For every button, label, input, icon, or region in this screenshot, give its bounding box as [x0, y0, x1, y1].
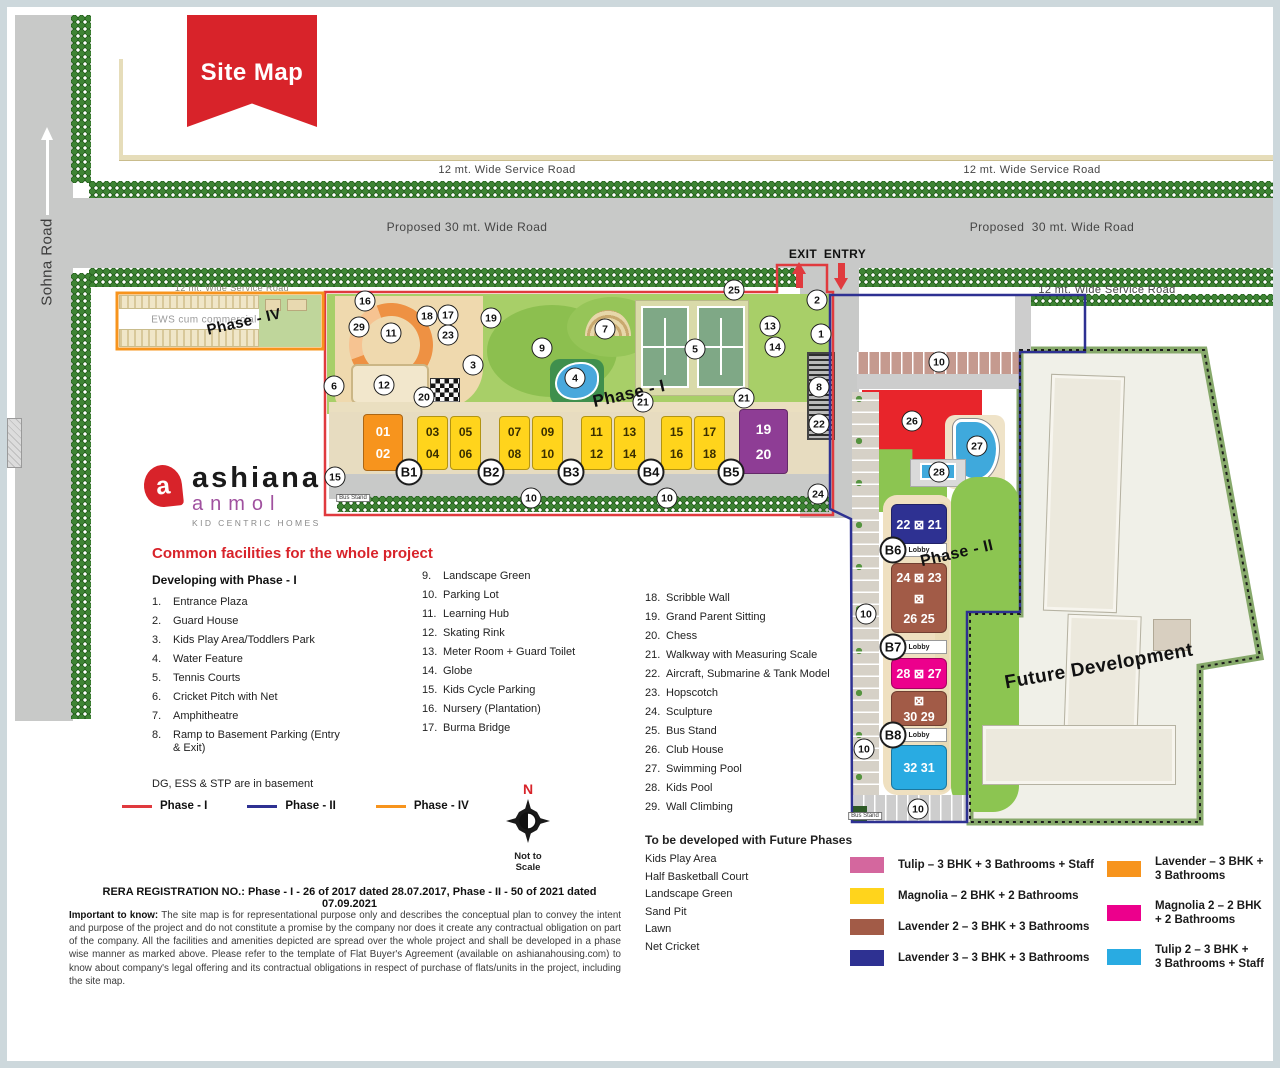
not-to-scale-label: Not to Scale — [502, 851, 554, 873]
unit-legend-label: Lavender – 3 BHK + 3 Bathrooms — [1155, 855, 1263, 884]
facility-text: 13. — [422, 646, 443, 659]
map-label: Sohna Road — [39, 218, 56, 305]
facility-item: 2.Guard House — [152, 615, 347, 628]
tower-number: 04 — [426, 448, 439, 460]
tower-24-23-26-25: 24 ⊠ 23⊠26 25 — [891, 563, 947, 633]
tree-row — [89, 181, 1279, 198]
sohna-road — [15, 15, 73, 721]
facility-marker-3: 3 — [463, 355, 484, 376]
facility-item: 8.Ramp to Basement Parking (Entry & Exit… — [152, 729, 347, 755]
facility-marker-10: 10 — [929, 352, 950, 373]
unit-color-swatch — [850, 888, 884, 904]
tower-row: 32 31 — [903, 761, 934, 775]
future-phase-item: Sand Pit — [645, 906, 852, 918]
unit-legend-label: Magnolia 2 – 2 BHK + 2 Bathrooms — [1155, 899, 1262, 928]
facility-item: 15.Kids Cycle Parking — [422, 684, 627, 697]
tower-number: 17 — [703, 426, 716, 438]
facility-item: 16.Nursery (Plantation) — [422, 703, 627, 716]
unit-legend-item: Magnolia 2 – 2 BHK + 2 Bathrooms — [1107, 899, 1264, 928]
stair-core — [7, 418, 22, 468]
facility-item: 29.Wall Climbing — [645, 801, 830, 814]
entry-arrow — [834, 278, 848, 290]
tower-number: 19 — [756, 422, 772, 436]
chess-board — [430, 378, 460, 404]
facility-marker-1: 1 — [811, 324, 832, 345]
facility-text: Kids Pool — [666, 782, 830, 795]
disclaimer-body: The site map is for representational pur… — [69, 910, 621, 987]
tree-row — [71, 15, 91, 183]
facility-item: 24.Sculpture — [645, 706, 830, 719]
facility-marker-21: 21 — [734, 388, 755, 409]
phase-line-label: Phase - II — [285, 800, 336, 812]
plot-boundary-line — [119, 59, 123, 159]
facility-marker-7: 7 — [595, 319, 616, 340]
tower-number: 02 — [376, 447, 390, 460]
facility-text: Burma Bridge — [443, 722, 627, 735]
unit-legend-item: Tulip – 3 BHK + 3 Bathrooms + Staff — [850, 857, 1094, 873]
facility-text: Learning Hub — [443, 608, 627, 621]
facility-text: 15. — [422, 684, 443, 697]
unit-color-swatch — [1107, 905, 1141, 921]
unit-color-swatch — [850, 857, 884, 873]
phase2-road — [857, 374, 1019, 389]
facility-text: Tennis Courts — [173, 672, 347, 685]
tower-number: 14 — [623, 448, 636, 460]
disclaimer: Important to know: The site map is for r… — [69, 909, 621, 988]
phase-line-swatch — [122, 805, 152, 808]
facility-marker-26: 26 — [902, 411, 923, 432]
phase-line-Phase-II: Phase - II — [247, 800, 336, 812]
facility-text: 27. — [645, 763, 666, 776]
facility-text: Hopscotch — [666, 687, 830, 700]
unit-legend-label: Lavender 3 – 3 BHK + 3 Bathrooms — [898, 951, 1089, 965]
facility-item: 25.Bus Stand — [645, 725, 830, 738]
facility-marker-12: 12 — [374, 375, 395, 396]
ashiana-logo-icon: a — [142, 463, 184, 509]
facility-text: 24. — [645, 706, 666, 719]
facility-item: 26.Club House — [645, 744, 830, 757]
tree-row — [337, 496, 829, 512]
unit-color-swatch — [850, 950, 884, 966]
facility-text: Wall Climbing — [666, 801, 830, 814]
facility-item: 1.Entrance Plaza — [152, 596, 347, 609]
map-label: 12 mt. Wide Service Road — [175, 283, 289, 293]
facility-marker-6: 6 — [324, 376, 345, 397]
map-label: Proposed 30 mt. Wide Road — [387, 220, 548, 234]
logo-tagline: KID CENTRIC HOMES — [192, 518, 321, 528]
tower-07-08: 0708 — [499, 416, 530, 470]
basement-note: DG, ESS & STP are in basement — [152, 778, 313, 790]
facility-text: Water Feature — [173, 653, 347, 666]
tower-number: 09 — [541, 426, 554, 438]
facility-marker-16: 16 — [355, 291, 376, 312]
disclaimer-lead: Important to know: — [69, 910, 158, 921]
entry-arrow — [838, 263, 845, 279]
facility-text: Aircraft, Submarine & Tank Model — [666, 668, 830, 681]
tower-row: 26 25 — [903, 612, 934, 626]
tower-number: 13 — [623, 426, 636, 438]
facility-text: 3. — [152, 634, 173, 647]
tower-03-04: 0304 — [417, 416, 448, 470]
facility-marker-10: 10 — [521, 488, 542, 509]
compass: N Not to Scale — [502, 781, 554, 873]
tower-30-29: ⊠30 29 — [891, 691, 947, 726]
tower-number: 01 — [376, 425, 390, 438]
facility-text: 17. — [422, 722, 443, 735]
facility-text: 16. — [422, 703, 443, 716]
facility-marker-10: 10 — [856, 604, 877, 625]
facility-marker-22: 22 — [809, 414, 830, 435]
tower-row: 30 29 — [903, 710, 934, 724]
facility-item: 13.Meter Room + Guard Toilet — [422, 646, 627, 659]
logo-sub-brand: anmol — [192, 493, 321, 516]
facility-item: 11.Learning Hub — [422, 608, 627, 621]
tower-15-16: 1516 — [661, 416, 692, 470]
facilities-col1-header: Developing with Phase - I — [152, 573, 347, 587]
facility-marker-27: 27 — [967, 436, 988, 457]
facility-text: 18. — [645, 592, 666, 605]
future-phase-item: Net Cricket — [645, 941, 852, 953]
facility-item: 7.Amphitheatre — [152, 710, 347, 723]
phase-line-Phase-IV: Phase - IV — [376, 800, 469, 812]
facility-marker-5: 5 — [685, 339, 706, 360]
tower-row: 28 ⊠ 27 — [896, 666, 941, 681]
parking-strip — [852, 392, 879, 797]
facility-item: 17.Burma Bridge — [422, 722, 627, 735]
unit-color-swatch — [850, 919, 884, 935]
tower-number: 11 — [590, 426, 603, 438]
future-phases-block: To be developed with Future Phases Kids … — [645, 833, 852, 958]
phase-line-legend: Phase - IPhase - IIPhase - IV — [122, 800, 469, 812]
facility-marker-20: 20 — [414, 387, 435, 408]
block-marker-B7: B7 — [880, 634, 907, 661]
tower-number: 12 — [590, 448, 603, 460]
phase4-building — [287, 299, 307, 311]
tower-number: 16 — [670, 448, 683, 460]
facility-text: 5. — [152, 672, 173, 685]
facility-text: 29. — [645, 801, 666, 814]
tower-05-06: 0506 — [450, 416, 481, 470]
tower-row: ⊠ — [914, 591, 924, 606]
facility-text: Swimming Pool — [666, 763, 830, 776]
facility-marker-28: 28 — [929, 462, 950, 483]
future-phase-item: Half Basketball Court — [645, 871, 852, 883]
facility-text: Chess — [666, 630, 830, 643]
facility-item: 19.Grand Parent Sitting — [645, 611, 830, 624]
facility-text: 7. — [152, 710, 173, 723]
facility-text: Meter Room + Guard Toilet — [443, 646, 627, 659]
stub-road — [1015, 294, 1031, 352]
facility-text: 26. — [645, 744, 666, 757]
facility-text: 1. — [152, 596, 173, 609]
facility-marker-8: 8 — [809, 377, 830, 398]
tower-number: 10 — [541, 448, 554, 460]
facility-marker-17: 17 — [438, 305, 459, 326]
facility-marker-10: 10 — [657, 488, 678, 509]
exit-arrow — [796, 273, 803, 288]
facility-text: 21. — [645, 649, 666, 662]
facility-text: Nursery (Plantation) — [443, 703, 627, 716]
phase-line-label: Phase - I — [160, 800, 207, 812]
facility-text: 25. — [645, 725, 666, 738]
page-title: Site Map — [201, 59, 304, 127]
facility-item: 28.Kids Pool — [645, 782, 830, 795]
block-marker-B6: B6 — [880, 537, 907, 564]
facility-marker-14: 14 — [765, 337, 786, 358]
block-marker-B8: B8 — [880, 722, 907, 749]
facility-text: 14. — [422, 665, 443, 678]
tower-28-27: 28 ⊠ 27 — [891, 658, 947, 689]
unit-color-swatch — [1107, 861, 1141, 877]
facility-text: Walkway with Measuring Scale — [666, 649, 830, 662]
map-label: 12 mt. Wide Service Road — [963, 164, 1100, 176]
facility-item: 12.Skating Rink — [422, 627, 627, 640]
compass-north-label: N — [502, 781, 554, 797]
facility-text: 8. — [152, 729, 173, 755]
facility-text: 10. — [422, 589, 443, 602]
facility-item: 5.Tennis Courts — [152, 672, 347, 685]
facility-item: 18.Scribble Wall — [645, 592, 830, 605]
unit-legend-label: Tulip – 3 BHK + 3 Bathrooms + Staff — [898, 858, 1094, 872]
compass-rose-icon — [504, 797, 552, 845]
unit-legend-item: Lavender 2 – 3 BHK + 3 Bathrooms — [850, 919, 1094, 935]
facility-marker-19: 19 — [481, 308, 502, 329]
tower-row: 24 ⊠ 23 — [896, 570, 941, 585]
unit-legend-item: Magnolia – 2 BHK + 2 Bathrooms — [850, 888, 1094, 904]
unit-legend-right: Lavender – 3 BHK + 3 BathroomsMagnolia 2… — [1107, 855, 1264, 986]
tower-number: 05 — [459, 426, 472, 438]
tennis-court — [641, 306, 689, 388]
map-label: Bus Stand — [848, 812, 882, 820]
facility-text: Parking Lot — [443, 589, 627, 602]
map-label: ENTRY — [824, 247, 866, 261]
facilities-col2: 9.Landscape Green10.Parking Lot11.Learni… — [422, 570, 627, 741]
facility-text: Landscape Green — [443, 570, 627, 583]
site-map-banner: Site Map — [187, 15, 317, 127]
tree-row — [71, 273, 91, 719]
facility-item: 9.Landscape Green — [422, 570, 627, 583]
facilities-col3: 18.Scribble Wall19.Grand Parent Sitting2… — [645, 592, 830, 820]
facility-marker-15: 15 — [325, 467, 346, 488]
block-marker-B4: B4 — [638, 459, 665, 486]
facility-text: 6. — [152, 691, 173, 704]
facility-item: 21.Walkway with Measuring Scale — [645, 649, 830, 662]
facility-text: 19. — [645, 611, 666, 624]
facility-text: Guard House — [173, 615, 347, 628]
phase-line-label: Phase - IV — [414, 800, 469, 812]
future-building — [982, 725, 1176, 785]
facility-marker-10: 10 — [854, 739, 875, 760]
map-label: Bus Stand — [336, 494, 370, 502]
facility-item: 10.Parking Lot — [422, 589, 627, 602]
facility-text: Globe — [443, 665, 627, 678]
tower-number: 03 — [426, 426, 439, 438]
facility-marker-2: 2 — [807, 290, 828, 311]
facility-text: Grand Parent Sitting — [666, 611, 830, 624]
facility-marker-11: 11 — [381, 323, 402, 344]
commercial-building — [119, 295, 259, 309]
plot-boundary-line — [119, 155, 1279, 161]
north-arrow — [46, 139, 49, 215]
facility-item: 4.Water Feature — [152, 653, 347, 666]
block-marker-B1: B1 — [396, 459, 423, 486]
facility-text: Kids Play Area/Toddlers Park — [173, 634, 347, 647]
facility-marker-23: 23 — [438, 325, 459, 346]
future-phase-item: Lawn — [645, 923, 852, 935]
facility-text: 4. — [152, 653, 173, 666]
unit-legend-left: Tulip – 3 BHK + 3 Bathrooms + StaffMagno… — [850, 857, 1094, 981]
map-label: 12 mt. Wide Service Road — [1038, 284, 1175, 296]
block-marker-B2: B2 — [478, 459, 505, 486]
facility-text: 12. — [422, 627, 443, 640]
tower-01-02: 0102 — [363, 414, 403, 471]
facility-item: 14.Globe — [422, 665, 627, 678]
phase-line-Phase-I: Phase - I — [122, 800, 207, 812]
facility-marker-4: 4 — [565, 368, 586, 389]
facility-marker-10: 10 — [908, 799, 929, 820]
unit-legend-label: Tulip 2 – 3 BHK + 3 Bathrooms + Staff — [1155, 943, 1264, 972]
block-marker-B5: B5 — [718, 459, 745, 486]
facility-text: Entrance Plaza — [173, 596, 347, 609]
phase-line-swatch — [376, 805, 406, 808]
facility-marker-13: 13 — [760, 316, 781, 337]
ashiana-logo: a ashiana anmol KID CENTRIC HOMES — [144, 465, 321, 528]
unit-legend-label: Magnolia – 2 BHK + 2 Bathrooms — [898, 889, 1079, 903]
tower-number: 18 — [703, 448, 716, 460]
tower-11-12: 1112 — [581, 416, 612, 470]
facility-text: 22. — [645, 668, 666, 681]
facility-text: 11. — [422, 608, 443, 621]
unit-legend-item: Lavender 3 – 3 BHK + 3 Bathrooms — [850, 950, 1094, 966]
facility-text: Bus Stand — [666, 725, 830, 738]
facility-text: 2. — [152, 615, 173, 628]
facility-text: 23. — [645, 687, 666, 700]
facility-text: Kids Cycle Parking — [443, 684, 627, 697]
facility-text: Club House — [666, 744, 830, 757]
map-label: EXIT — [789, 247, 817, 261]
facility-marker-29: 29 — [349, 317, 370, 338]
map-label: Proposed 30 mt. Wide Road — [970, 220, 1134, 234]
logo-brand: ashiana — [192, 465, 321, 493]
tower-row: ⊠ — [914, 693, 924, 708]
map-label: 12 mt. Wide Service Road — [438, 164, 575, 176]
facilities-col1: Developing with Phase - I 1.Entrance Pla… — [152, 573, 347, 761]
future-phases-header: To be developed with Future Phases — [645, 833, 852, 847]
facility-text: Scribble Wall — [666, 592, 830, 605]
future-phase-item: Landscape Green — [645, 888, 852, 900]
tower-09-10: 0910 — [532, 416, 563, 470]
facility-text: Ramp to Basement Parking (Entry & Exit) — [173, 729, 347, 755]
facility-text: Sculpture — [666, 706, 830, 719]
site-map-page: Site Map 0102030405060708091011121314151… — [0, 0, 1280, 1068]
facilities-title: Common facilities for the whole project — [152, 545, 433, 562]
tower-19-20: 1920 — [739, 409, 788, 474]
tower-row: 22 ⊠ 21 — [896, 517, 941, 532]
facility-item: 27.Swimming Pool — [645, 763, 830, 776]
facility-text: 9. — [422, 570, 443, 583]
facility-text: 28. — [645, 782, 666, 795]
facility-item: 3.Kids Play Area/Toddlers Park — [152, 634, 347, 647]
block-marker-B3: B3 — [558, 459, 585, 486]
tower-number: 20 — [756, 447, 772, 461]
unit-legend-item: Tulip 2 – 3 BHK + 3 Bathrooms + Staff — [1107, 943, 1264, 972]
facility-marker-24: 24 — [808, 484, 829, 505]
facility-text: Cricket Pitch with Net — [173, 691, 347, 704]
tower-number: 06 — [459, 448, 472, 460]
facility-item: 6.Cricket Pitch with Net — [152, 691, 347, 704]
facility-marker-18: 18 — [417, 306, 438, 327]
tower-number: 07 — [508, 426, 521, 438]
tower-32-31: 32 31 — [891, 745, 947, 790]
facility-text: Amphitheatre — [173, 710, 347, 723]
tower-number: 08 — [508, 448, 521, 460]
rera-registration: RERA REGISTRATION NO.: Phase - I - 26 of… — [77, 886, 622, 910]
tower-number: 15 — [670, 426, 683, 438]
facility-text: Skating Rink — [443, 627, 627, 640]
facility-item: 22.Aircraft, Submarine & Tank Model — [645, 668, 830, 681]
unit-legend-label: Lavender 2 – 3 BHK + 3 Bathrooms — [898, 920, 1089, 934]
unit-color-swatch — [1107, 949, 1141, 965]
facility-text: 20. — [645, 630, 666, 643]
future-phase-item: Kids Play Area — [645, 853, 852, 865]
future-building — [1043, 374, 1125, 613]
facility-marker-25: 25 — [724, 280, 745, 301]
phase-line-swatch — [247, 805, 277, 808]
facility-marker-9: 9 — [532, 338, 553, 359]
facility-item: 23.Hopscotch — [645, 687, 830, 700]
facility-item: 20.Chess — [645, 630, 830, 643]
unit-legend-item: Lavender – 3 BHK + 3 Bathrooms — [1107, 855, 1264, 884]
